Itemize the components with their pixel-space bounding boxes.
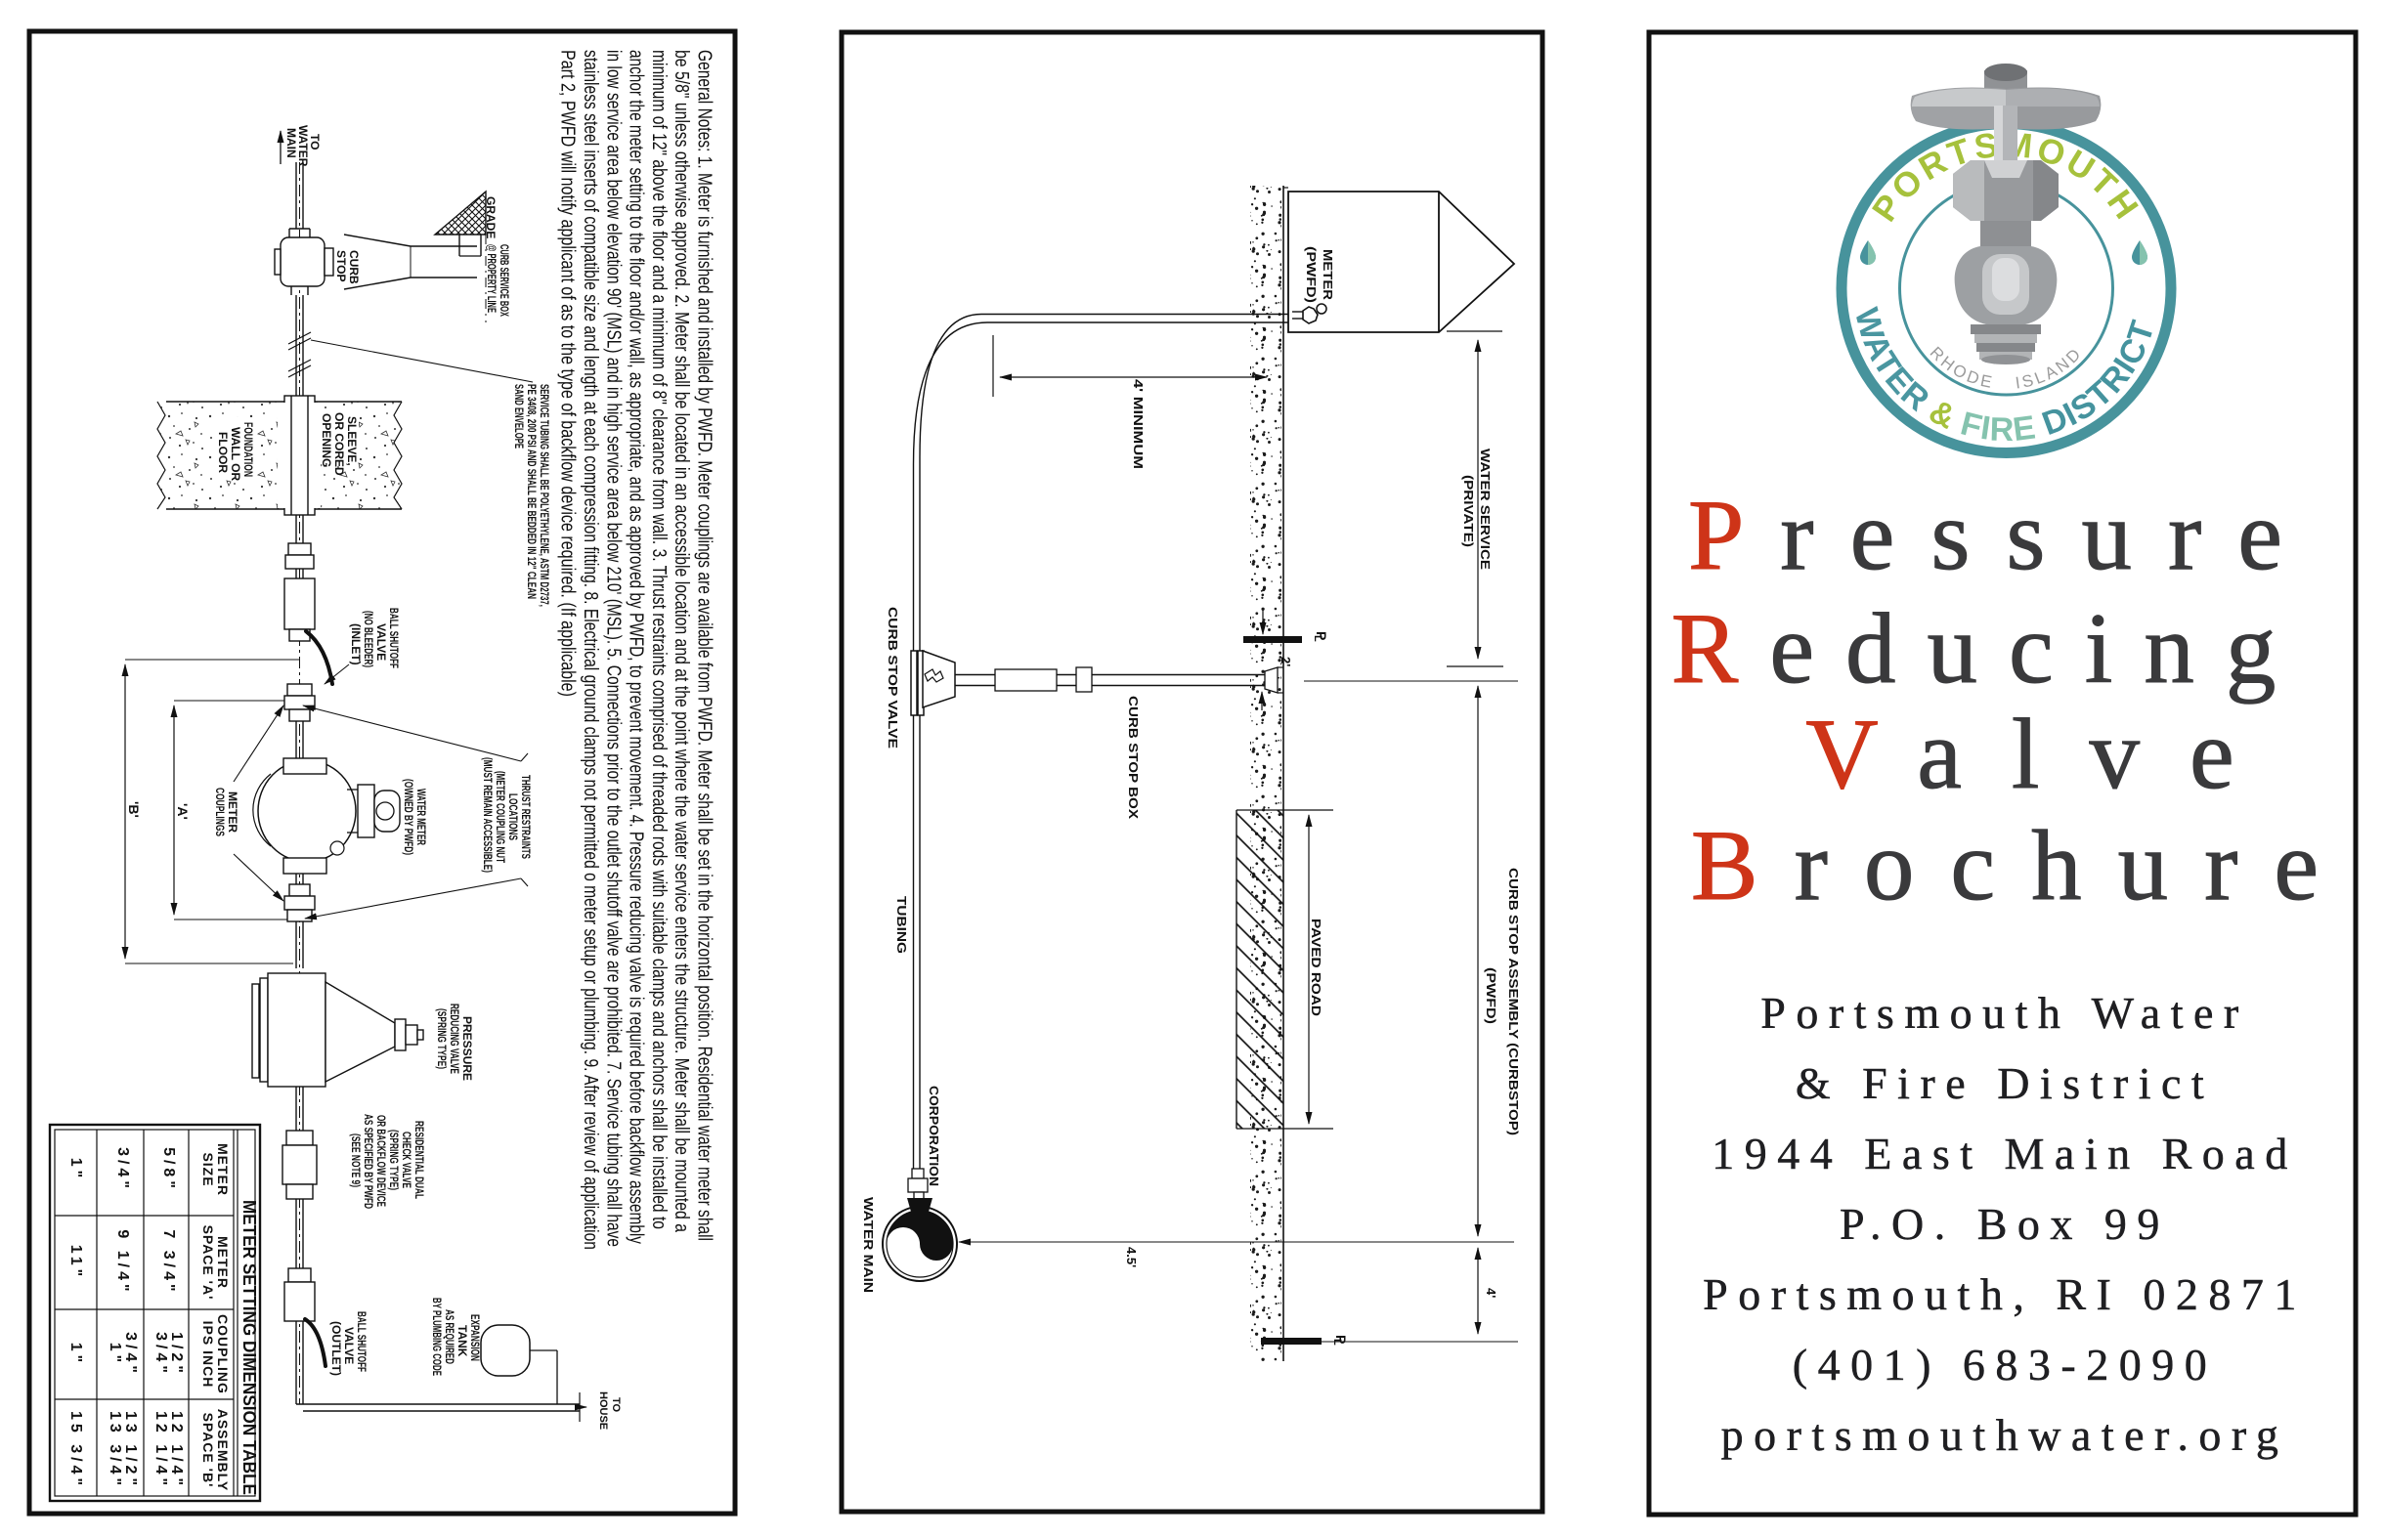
svg-text:& Fire District: & Fire District	[1796, 1058, 2214, 1108]
svg-text:(SEE NOTE 9): (SEE NOTE 9)	[349, 1134, 363, 1187]
svg-text:@ PROPERTY LINE: @ PROPERTY LINE	[485, 244, 499, 313]
svg-text:BALL SHUTOFF: BALL SHUTOFF	[355, 1311, 369, 1372]
svg-text:AS REQUIRED: AS REQUIRED	[443, 1309, 456, 1364]
svg-text:1": 1"	[67, 1158, 84, 1181]
svg-text:(METER COUPLING NUT: (METER COUPLING NUT	[494, 771, 507, 863]
svg-text:CURB: CURB	[347, 250, 361, 284]
svg-text:REDUCING VALVE: REDUCING VALVE	[448, 1004, 461, 1074]
svg-text:WATER METER: WATER METER	[414, 789, 428, 845]
svg-text:SIZE: SIZE	[200, 1152, 216, 1186]
svg-text:(SPRING TYPE): (SPRING TYPE)	[435, 1008, 449, 1069]
svg-text:2': 2'	[1279, 657, 1293, 666]
svg-text:(PWFD): (PWFD)	[1484, 967, 1498, 1024]
svg-text:(MUST REMAIN ACCESSIBLE): (MUST REMAIN ACCESSIBLE)	[481, 757, 495, 873]
svg-text:CHECK VALVE: CHECK VALVE	[400, 1132, 413, 1188]
svg-text:MAIN: MAIN	[284, 128, 298, 158]
svg-text:(401) 683-2090: (401) 683-2090	[1793, 1340, 2217, 1390]
svg-text:PRESSURE: PRESSURE	[460, 1016, 474, 1081]
svg-text:(SPRING TYPE): (SPRING TYPE)	[387, 1130, 401, 1190]
svg-text:METER SETTING DIMENSION TABLE: METER SETTING DIMENSION TABLE	[239, 1200, 259, 1495]
svg-text:stainless steel inserts of com: stainless steel inserts of compatible si…	[580, 50, 601, 1250]
svg-text:be 5/8" unless otherwise appro: be 5/8" unless otherwise approved. 2. Me…	[671, 50, 692, 1233]
svg-text:anchor the meter setting to th: anchor the meter setting to the floor an…	[626, 50, 647, 1244]
svg-text:12 1/4": 12 1/4"	[168, 1411, 185, 1489]
svg-text:General Notes: 1. Meter is fu: General Notes: 1. Meter is furnished and…	[694, 50, 715, 1241]
svg-text:WATER SERVICE: WATER SERVICE	[1478, 449, 1493, 570]
svg-text:BALL SHUTOFF: BALL SHUTOFF	[387, 608, 401, 668]
svg-text:LOCATIONS: LOCATIONS	[506, 793, 520, 840]
svg-text:(INLET): (INLET)	[349, 623, 363, 665]
svg-text:(OUTLET): (OUTLET)	[329, 1321, 343, 1376]
svg-text:SAND ENVELOPE: SAND ENVELOPE	[512, 384, 526, 449]
svg-text:1944 East Main Road: 1944 East Main Road	[1712, 1129, 2297, 1178]
svg-text:'B': 'B'	[126, 801, 142, 818]
svg-text:SERVICE TUBING SHALL BE POLYET: SERVICE TUBING SHALL BE POLYETHYLENE, AS…	[538, 384, 551, 607]
svg-text:TUBING: TUBING	[894, 896, 909, 954]
svg-text:SLEEVE,: SLEEVE,	[345, 416, 359, 466]
svg-text:TO: TO	[610, 1397, 622, 1413]
svg-text:3/4": 3/4"	[114, 1147, 131, 1192]
svg-text:EXPANSION: EXPANSION	[468, 1314, 482, 1361]
svg-text:3/4": 3/4"	[152, 1332, 169, 1377]
svg-text:4' MINIMUM: 4' MINIMUM	[1131, 379, 1146, 469]
svg-text:(PRIVATE): (PRIVATE)	[1461, 475, 1476, 547]
svg-text:METER: METER	[215, 1236, 231, 1289]
svg-text:METER: METER	[1321, 249, 1335, 301]
svg-text:FLOOR: FLOOR	[216, 432, 230, 473]
svg-text:Portsmouth Water: Portsmouth Water	[1760, 988, 2248, 1038]
svg-text:Brochure: Brochure	[1691, 810, 2355, 921]
svg-text:WATER MAIN: WATER MAIN	[861, 1197, 876, 1293]
svg-text:TANK: TANK	[455, 1325, 469, 1357]
svg-text:'A': 'A'	[175, 803, 191, 820]
svg-text:CORPORATION: CORPORATION	[927, 1086, 941, 1186]
svg-text:13 1/2": 13 1/2"	[122, 1411, 139, 1489]
svg-text:VALVE: VALVE	[342, 1327, 356, 1364]
svg-text:STOP: STOP	[334, 250, 348, 281]
svg-text:OPENING: OPENING	[320, 413, 333, 467]
svg-text:4.5': 4.5'	[1124, 1247, 1139, 1267]
svg-text:1": 1"	[107, 1343, 123, 1366]
svg-text:OR CORED: OR CORED	[332, 412, 346, 476]
svg-text:RESIDENTIAL DUAL: RESIDENTIAL DUAL	[412, 1121, 426, 1199]
svg-text:1": 1"	[67, 1343, 84, 1366]
svg-text:15 3/4": 15 3/4"	[67, 1411, 84, 1489]
svg-text:minimum of 12" above the floor: minimum of 12" above the floor and a min…	[648, 50, 670, 1229]
svg-text:THRUST RESTRAINTS: THRUST RESTRAINTS	[519, 775, 533, 859]
svg-text:FOUNDATION: FOUNDATION	[241, 422, 255, 477]
svg-text:SPACE 'B': SPACE 'B'	[200, 1413, 216, 1488]
svg-text:SPACE 'A': SPACE 'A'	[200, 1225, 216, 1301]
svg-text:VALVE: VALVE	[374, 623, 388, 661]
svg-text:L: L	[1312, 635, 1323, 642]
svg-text:portsmouthwater.org: portsmouthwater.org	[1721, 1410, 2289, 1460]
svg-text:ASSEMBLY: ASSEMBLY	[215, 1409, 231, 1492]
svg-text:HOUSE: HOUSE	[597, 1391, 609, 1430]
svg-text:9 1/4": 9 1/4"	[114, 1229, 131, 1295]
svg-text:L: L	[1331, 1339, 1343, 1346]
svg-text:(NO BLEEDER): (NO BLEEDER)	[362, 611, 375, 667]
svg-text:METER: METER	[226, 791, 239, 833]
svg-text:CURB STOP ASSEMBLY (CURBSTOP): CURB STOP ASSEMBLY (CURBSTOP)	[1506, 868, 1521, 1135]
svg-text:12 1/4": 12 1/4"	[152, 1411, 169, 1489]
svg-text:COUPLINGS: COUPLINGS	[213, 788, 227, 836]
svg-text:(PWFD): (PWFD)	[1304, 246, 1319, 303]
svg-text:Portsmouth, RI 02871: Portsmouth, RI 02871	[1703, 1269, 2307, 1319]
svg-text:WALL OR: WALL OR	[229, 427, 242, 481]
svg-text:PE 3408, 200 PSI AND SHALL BE: PE 3408, 200 PSI AND SHALL BE BEDDED IN …	[525, 384, 539, 599]
svg-text:IPS INCH: IPS INCH	[200, 1321, 216, 1389]
svg-text:P.O. Box 99: P.O. Box 99	[1840, 1199, 2170, 1249]
svg-text:AS SPECIFIED BY PWFD: AS SPECIFIED BY PWFD	[362, 1114, 375, 1209]
svg-text:CURB STOP VALVE: CURB STOP VALVE	[886, 607, 900, 749]
svg-text:PAVED ROAD: PAVED ROAD	[1309, 919, 1323, 1016]
svg-text:CURB STOP BOX: CURB STOP BOX	[1126, 696, 1141, 819]
svg-text:Reducing: Reducing	[1671, 593, 2308, 705]
svg-text:CURB SERVICE BOX: CURB SERVICE BOX	[498, 244, 511, 317]
svg-text:(OWNED BY PWFD): (OWNED BY PWFD)	[402, 779, 415, 855]
svg-text:Pressure: Pressure	[1688, 480, 2319, 591]
svg-text:4': 4'	[1484, 1288, 1498, 1298]
svg-text:COUPLING: COUPLING	[215, 1314, 231, 1394]
svg-text:13 3/4": 13 3/4"	[107, 1411, 123, 1489]
svg-text:1/2": 1/2"	[168, 1332, 185, 1377]
svg-text:Valve: Valve	[1805, 699, 2284, 810]
svg-text:11": 11"	[67, 1245, 84, 1281]
svg-text:5/8": 5/8"	[160, 1147, 177, 1192]
svg-text:OR BACKFLOW DEVICE: OR BACKFLOW DEVICE	[374, 1115, 388, 1207]
svg-text:BY PLUMBING CODE: BY PLUMBING CODE	[430, 1298, 444, 1376]
svg-text:in low service area below elev: in low service area below elevation 90' …	[602, 50, 624, 1247]
svg-text:3/4": 3/4"	[122, 1332, 139, 1377]
svg-text:METER: METER	[215, 1143, 231, 1196]
svg-text:7 3/4": 7 3/4"	[160, 1229, 177, 1295]
svg-text:Part 2, PWFD will notify appli: Part 2, PWFD will notify applicant of as…	[557, 50, 579, 697]
